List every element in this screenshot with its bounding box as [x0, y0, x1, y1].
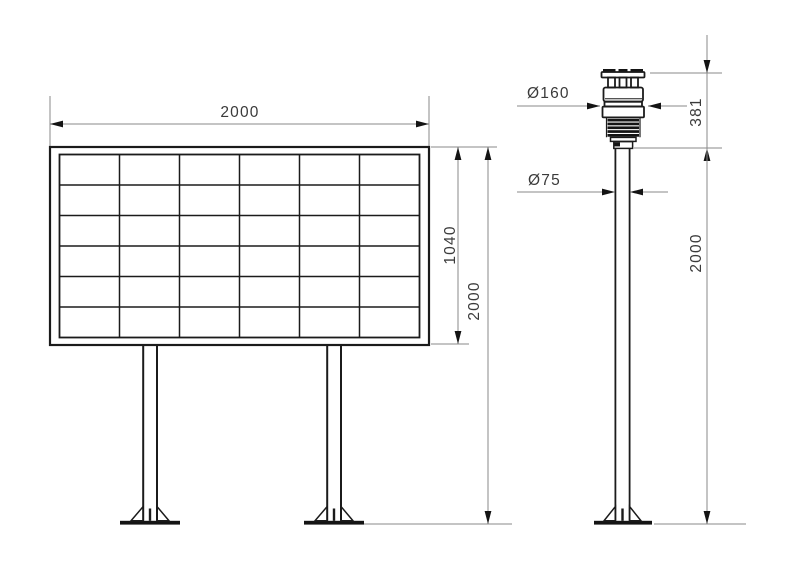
arrow-right-icon [416, 121, 429, 128]
dim-label-pole-diameter: Ø75 [528, 172, 561, 189]
dimension-sensor-diameter: Ø160 [517, 85, 687, 109]
sensor-post [631, 78, 638, 88]
dim-label-board-total-height: 2000 [466, 281, 483, 320]
sensor-post [608, 78, 615, 88]
pole-base [594, 507, 652, 525]
dim-label-board-width: 2000 [220, 104, 259, 121]
board-left-leg [143, 345, 157, 521]
sensor-post [620, 78, 627, 88]
louver-slat [608, 134, 640, 137]
dim-label-panel-height: 1040 [442, 225, 459, 264]
dimension-board-width: 2000 [50, 96, 429, 146]
dim-label-pole-height: 2000 [688, 233, 705, 272]
arrow-up-icon [455, 147, 462, 160]
arrow-right-icon [602, 189, 615, 196]
dimension-board-total-height: 2000 [466, 147, 491, 524]
sensor-step [611, 137, 637, 141]
sensor-lower-body [603, 107, 645, 118]
base-plate [120, 521, 180, 525]
arrow-left-icon [50, 121, 63, 128]
arrow-down-icon [704, 511, 711, 524]
louver-slat [608, 123, 640, 126]
arrow-right-icon [587, 103, 600, 110]
louver-slat [608, 119, 640, 122]
pole-shaft [615, 149, 629, 521]
louver-slat [608, 130, 640, 133]
gusset-right [157, 507, 169, 521]
panel-grid-lines [60, 155, 420, 338]
board-right-leg [327, 345, 341, 521]
louver-slat [608, 126, 640, 129]
gusset-left [315, 507, 327, 521]
display-board-view: 2000 1040 [50, 96, 512, 525]
board-left-base [120, 507, 180, 525]
board-right-base [304, 507, 364, 525]
sensor-pole-view: Ø160 Ø75 381 2000 [517, 35, 746, 525]
arrow-left-icon [648, 103, 661, 110]
gusset-left [131, 507, 143, 521]
drawing-svg: 2000 1040 [0, 0, 800, 563]
technical-drawing-canvas: 2000 1040 [0, 0, 800, 563]
gusset-left [604, 507, 615, 521]
arrow-left-icon [630, 189, 643, 196]
weather-sensor [602, 69, 645, 148]
dimension-sensor-height: 381 [634, 35, 722, 161]
gusset-right [630, 507, 641, 521]
neck-fitting [615, 142, 621, 146]
dim-label-sensor-height: 381 [688, 97, 705, 126]
dimension-pole-height: 2000 [688, 148, 710, 524]
arrow-down-icon [704, 60, 711, 73]
arrow-down-icon [455, 331, 462, 344]
base-plate [304, 521, 364, 525]
dimension-panel-height: 1040 [431, 147, 497, 344]
gusset-right [341, 507, 353, 521]
sensor-upper-body [604, 88, 644, 102]
arrow-up-icon [485, 147, 492, 160]
dimension-pole-diameter: Ø75 [517, 172, 668, 195]
extension-lines [634, 73, 722, 148]
arrow-down-icon [485, 511, 492, 524]
dim-label-sensor-diameter: Ø160 [527, 85, 570, 102]
extension-lines [431, 147, 497, 344]
